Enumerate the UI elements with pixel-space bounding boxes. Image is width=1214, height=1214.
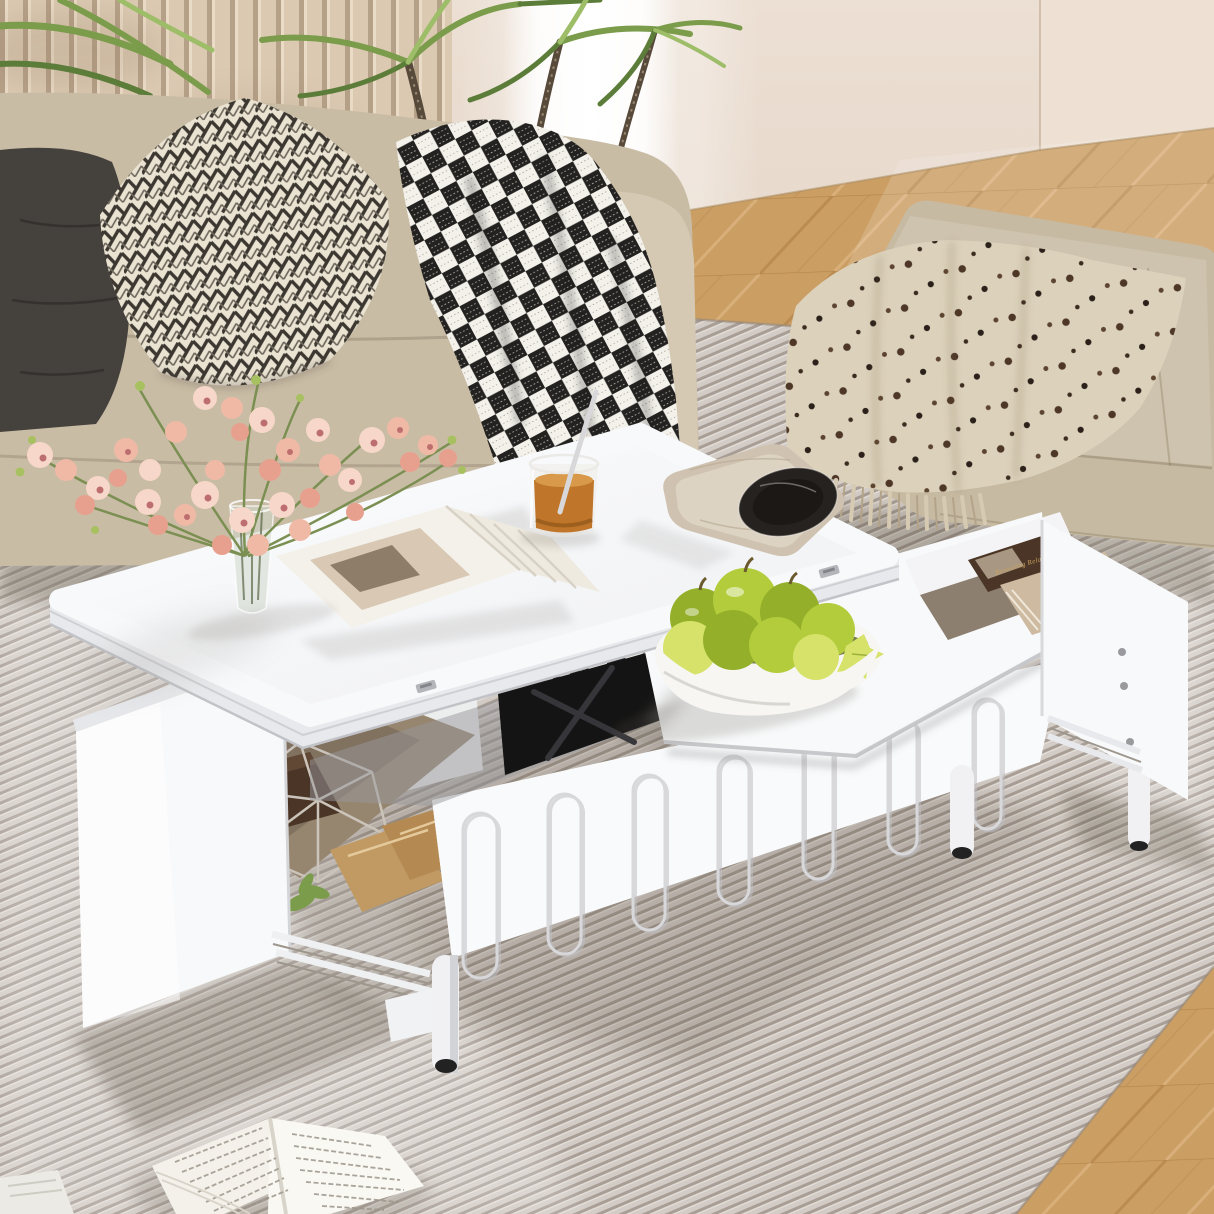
dark-pillow bbox=[0, 148, 130, 432]
front-right-leg bbox=[950, 765, 974, 859]
drink-surface bbox=[535, 473, 593, 487]
back-right-foot bbox=[1130, 841, 1148, 851]
leg-shade bbox=[450, 955, 458, 1073]
front-right-foot bbox=[952, 847, 972, 859]
living-room-photo: Revealing Relaxation bbox=[0, 0, 1214, 1214]
front-left-foot bbox=[435, 1059, 457, 1073]
